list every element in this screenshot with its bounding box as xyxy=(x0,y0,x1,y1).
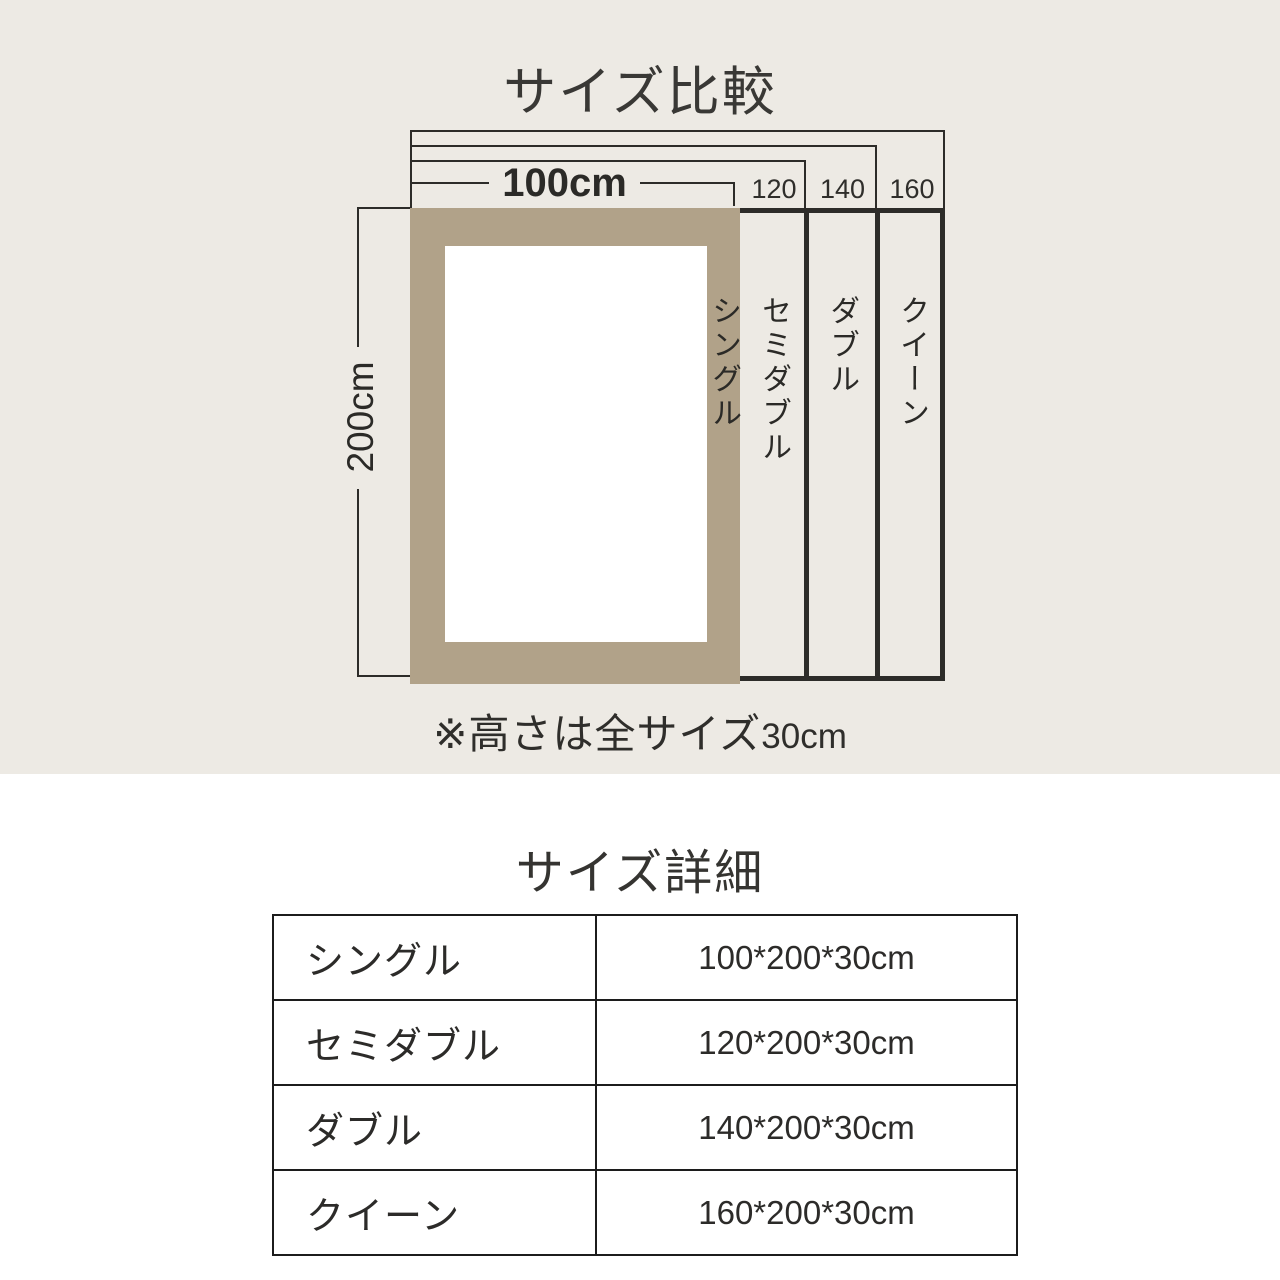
height-dimension-cap-bottom xyxy=(357,675,410,677)
width-label-120: 120 xyxy=(742,174,806,205)
single-size-inner xyxy=(445,246,707,642)
size-details-section: サイズ詳細 シングル 100*200*30cm セミダブル 120*200*30… xyxy=(0,774,1280,1280)
width-label-160: 160 xyxy=(879,174,945,205)
width-dimension-line-right xyxy=(640,182,735,184)
strip-label-queen: クイーン xyxy=(895,295,927,431)
width-dimension-tick xyxy=(733,182,735,206)
size-details-table: シングル 100*200*30cm セミダブル 120*200*30cm ダブル… xyxy=(272,914,1018,1256)
width-dimension-label: 100cm xyxy=(489,161,640,206)
details-title: サイズ詳細 xyxy=(0,833,1280,903)
size-value-cell: 120*200*30cm xyxy=(596,1000,1017,1085)
height-note-text: ※高さは全サイズ xyxy=(433,711,761,757)
width-dimension-line-left xyxy=(411,182,489,184)
size-comparison-section: サイズ比較 120 140 160 100cm 200cm シングル セミダブル… xyxy=(0,0,1280,774)
size-name-cell: セミダブル xyxy=(273,1000,596,1085)
size-name-cell: シングル xyxy=(273,915,596,1000)
table-row: セミダブル 120*200*30cm xyxy=(273,1000,1017,1085)
size-value-cell: 100*200*30cm xyxy=(596,915,1017,1000)
width-label-140: 140 xyxy=(808,174,877,205)
strip-label-double: ダブル xyxy=(825,295,857,397)
strip-divider-1 xyxy=(804,213,809,676)
comparison-title: サイズ比較 xyxy=(0,50,1280,126)
size-value-cell: 160*200*30cm xyxy=(596,1170,1017,1255)
height-dimension-cap-top xyxy=(357,207,410,209)
strip-divider-2 xyxy=(875,213,880,676)
table-row: シングル 100*200*30cm xyxy=(273,915,1017,1000)
size-name-cell: クイーン xyxy=(273,1170,596,1255)
height-dimension-label: 200cm xyxy=(340,347,378,487)
height-dimension-line-bottom xyxy=(357,489,359,677)
size-name-cell: ダブル xyxy=(273,1085,596,1170)
table-row: ダブル 140*200*30cm xyxy=(273,1085,1017,1170)
height-note-value: 30cm xyxy=(761,717,847,756)
strip-label-semidouble: セミダブル xyxy=(757,295,789,465)
table-row: クイーン 160*200*30cm xyxy=(273,1170,1017,1255)
height-dimension-line-top xyxy=(357,207,359,347)
height-note: ※高さは全サイズ30cm xyxy=(0,700,1280,760)
size-value-cell: 140*200*30cm xyxy=(596,1085,1017,1170)
strip-label-single: シングル xyxy=(707,295,739,431)
